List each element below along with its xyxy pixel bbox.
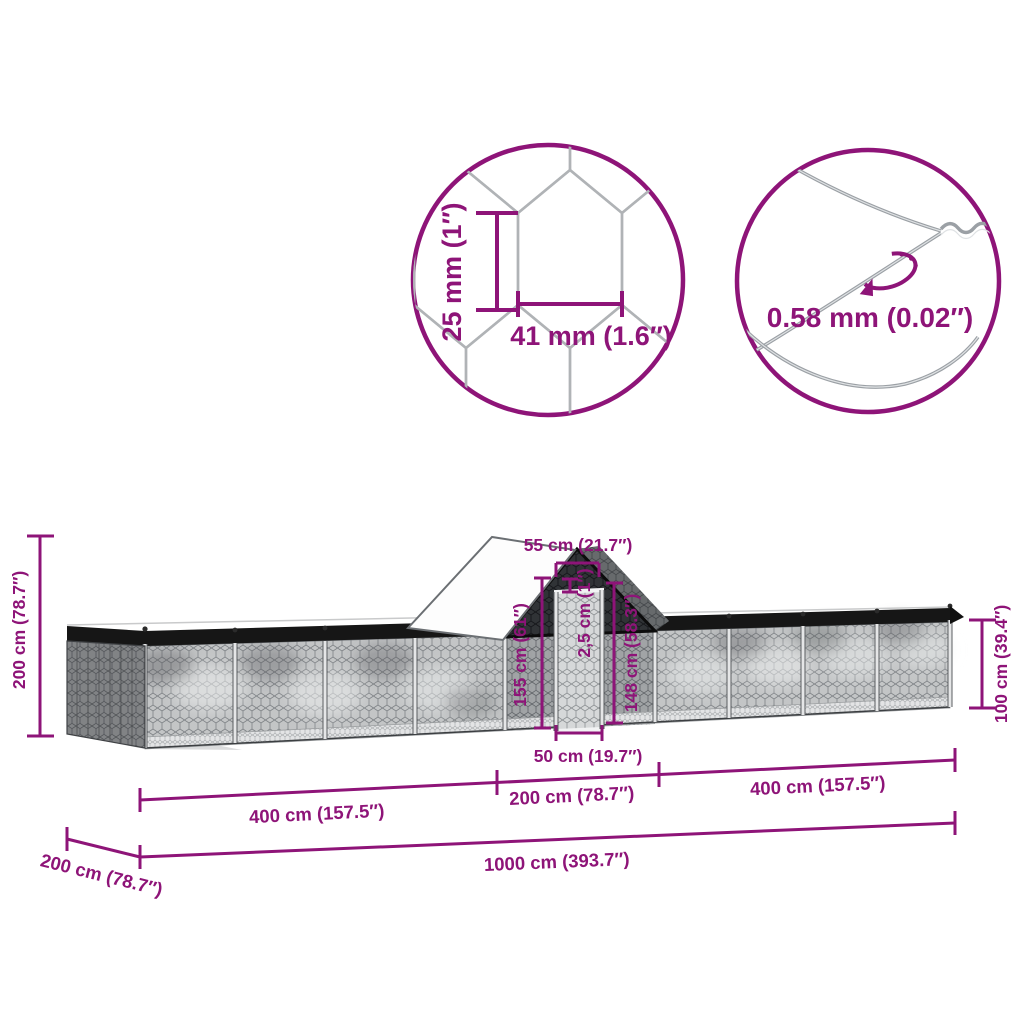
diagram-canvas: 200 cm (78.7″) 100 cm (39.4″) 55 cm (21.… xyxy=(0,0,1024,1024)
wire-diameter-label: 0.58 mm (0.02″) xyxy=(767,302,973,333)
dim-run-height: 100 cm (39.4″) xyxy=(969,605,1011,723)
dim-coop-length-label: 200 cm (78.7″) xyxy=(509,782,635,809)
dim-door-width-label: 50 cm (19.7″) xyxy=(534,746,643,766)
dim-right-run-length-label: 400 cm (157.5″) xyxy=(750,772,886,800)
right-end-sliver xyxy=(950,606,964,624)
mesh-height-label: 25 mm (1″) xyxy=(437,203,467,342)
dim-panel-thickness-label: 2,5 cm (1″) xyxy=(574,568,594,657)
left-end-shade xyxy=(67,641,145,748)
product-dimension-diagram: 200 cm (78.7″) 100 cm (39.4″) 55 cm (21.… xyxy=(0,0,1024,1024)
dim-total-height-label: 200 cm (78.7″) xyxy=(9,571,29,689)
dim-coop-wall-height-label: 148 cm (58.3″) xyxy=(621,594,641,712)
dim-coop-height-label: 155 cm (61″) xyxy=(510,603,530,707)
mesh-width-label: 41 mm (1.6″) xyxy=(510,321,672,351)
dim-total-length-label: 1000 cm (393.7″) xyxy=(484,848,630,875)
dim-total-height: 200 cm (78.7″) xyxy=(9,536,54,736)
dim-left-run-length-label: 400 cm (157.5″) xyxy=(249,800,385,828)
dim-coop-top-width-label: 55 cm (21.7″) xyxy=(524,535,633,555)
wire-detail-callout: 0.58 mm (0.02″) xyxy=(737,150,1004,412)
mesh-detail-callout: 25 mm (1″) 41 mm (1.6″) xyxy=(310,35,726,483)
dim-run-height-label: 100 cm (39.4″) xyxy=(991,605,1011,723)
dim-depth: 200 cm (78.7″) xyxy=(38,827,164,900)
